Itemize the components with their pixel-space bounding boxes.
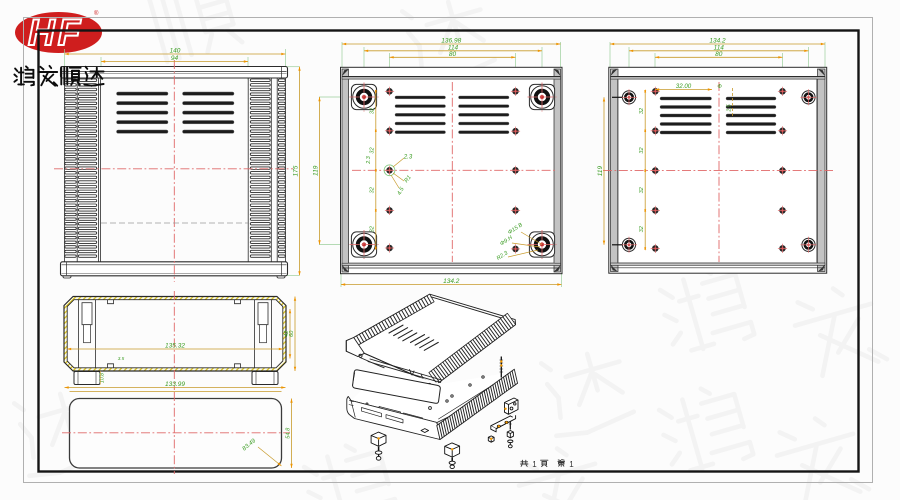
svg-text:32: 32 xyxy=(369,107,375,114)
svg-text:80: 80 xyxy=(715,51,723,58)
svg-text:60: 60 xyxy=(289,330,295,337)
svg-text:HF: HF xyxy=(28,12,83,53)
svg-text:2.5: 2.5 xyxy=(727,104,733,112)
svg-text:1: 1 xyxy=(569,460,574,469)
svg-text:1: 1 xyxy=(532,460,537,469)
svg-text:175: 175 xyxy=(293,165,300,176)
svg-text:134.2: 134.2 xyxy=(443,278,460,285)
svg-text:140: 140 xyxy=(170,48,181,55)
svg-text:32: 32 xyxy=(639,186,645,193)
svg-text:32: 32 xyxy=(639,225,645,232)
svg-text:32: 32 xyxy=(369,186,375,193)
svg-text:32: 32 xyxy=(369,147,375,154)
svg-text:2.3: 2.3 xyxy=(403,155,413,161)
svg-text:32: 32 xyxy=(639,107,645,114)
svg-text:133.99: 133.99 xyxy=(165,381,185,388)
svg-text:119: 119 xyxy=(597,165,604,176)
svg-text:Φ: Φ xyxy=(717,84,722,90)
svg-text:80: 80 xyxy=(449,51,457,58)
svg-text:32: 32 xyxy=(639,147,645,154)
svg-text:2.3: 2.3 xyxy=(366,156,372,165)
svg-text:3.5: 3.5 xyxy=(118,356,125,361)
svg-text:32.00: 32.00 xyxy=(676,83,692,90)
svg-text:32: 32 xyxy=(369,225,375,232)
svg-text:135.32: 135.32 xyxy=(165,343,185,350)
svg-text:94: 94 xyxy=(171,55,179,62)
svg-text:119: 119 xyxy=(313,165,320,176)
svg-text:®: ® xyxy=(94,10,99,17)
svg-text:54.8: 54.8 xyxy=(286,427,292,439)
